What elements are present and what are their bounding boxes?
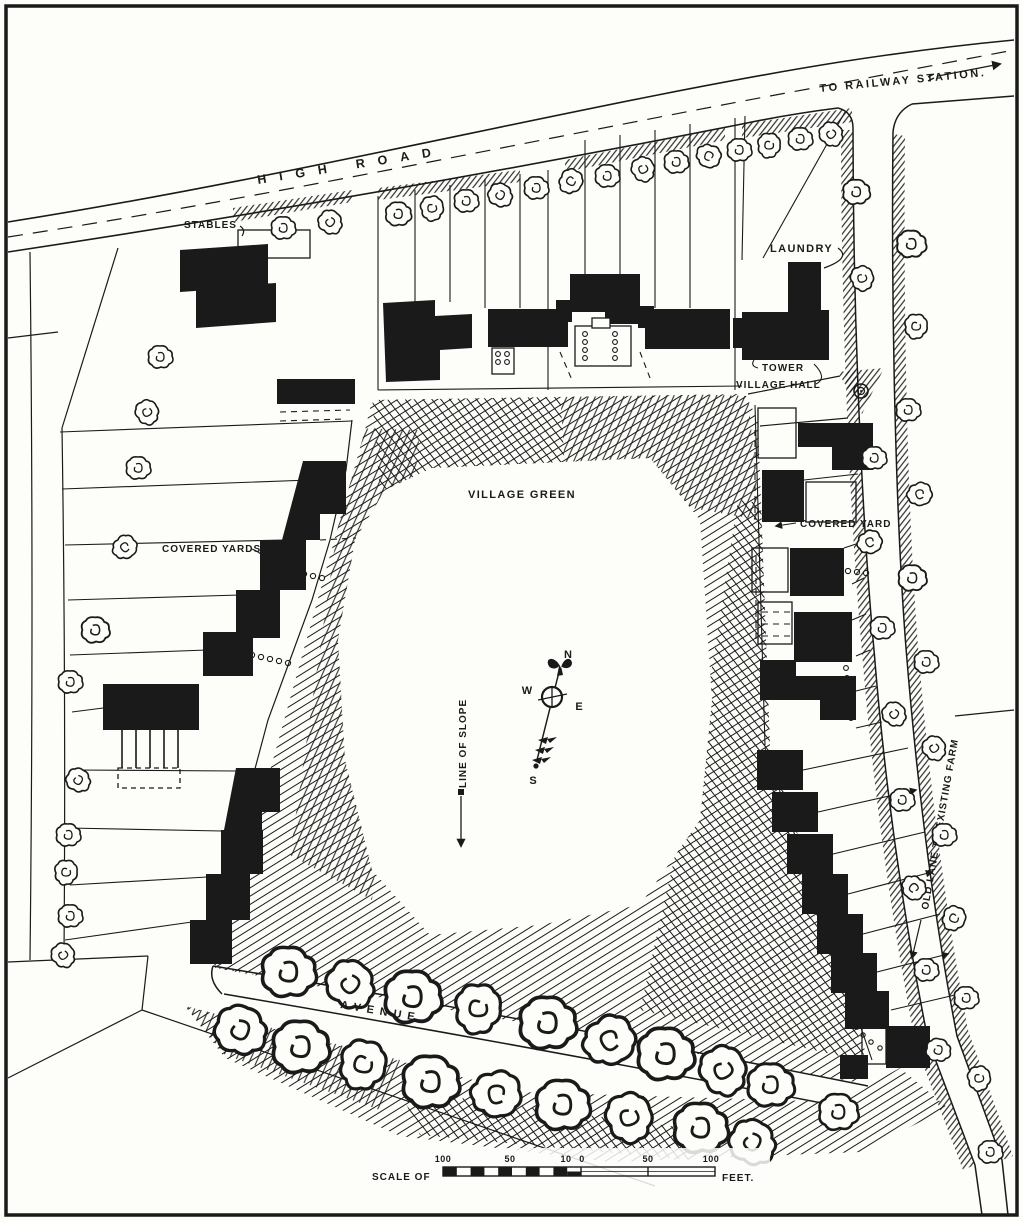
scale-bar: SCALE OF FEET. 100 50 10 0 50 100 [366,1148,770,1190]
scale-tick-100R: 100 [703,1154,720,1164]
right-row-4 [802,874,848,914]
scale-tick-50R: 50 [642,1154,653,1164]
tower-label: TOWER [762,363,804,374]
right-terrace-3 [790,548,844,596]
village-hall-label: VILLAGE HALL [736,380,821,391]
covered-yard-label: COVERED YARD [800,519,891,530]
right-terrace-2 [762,470,804,522]
terrace-north-4 [645,309,730,349]
left-terrace-2 [260,540,306,590]
left-terrace-3 [236,590,280,638]
right-row-1 [757,750,803,790]
compass-n: N [564,649,572,661]
scale-tick-50L: 50 [504,1154,515,1164]
laundry-annex [733,318,742,348]
right-row-9 [886,1026,930,1068]
right-row-3 [787,834,833,874]
compass-w: W [522,685,533,697]
right-terrace-5 [760,660,796,700]
right-row-2 [772,792,818,832]
line-of-slope-label: LINE OF SLOPE [458,699,469,788]
site-plan-page: HIGH ROAD TO RAILWAY STATION. OLD LANE T… [0,0,1023,1221]
village-green-label: VILLAGE GREEN [468,489,576,501]
scale-prefix-label: SCALE OF [372,1172,431,1183]
garden-building [277,379,355,404]
scale-tick-10: 10 [560,1154,571,1164]
right-row-8 [840,1055,868,1079]
right-row-7 [845,991,889,1029]
right-row-5 [817,914,863,954]
village-plan-map: HIGH ROAD TO RAILWAY STATION. OLD LANE T… [0,0,1023,1221]
stables-label: STABLES [184,220,237,231]
compass-s: S [529,775,536,787]
left-row-3 [206,874,250,920]
terrace-north-3w [556,300,572,322]
scale-tick-0: 0 [579,1154,585,1164]
right-terrace-4 [794,612,852,662]
left-mid-building [103,684,199,730]
stables-building-2 [196,283,276,328]
compass-e: E [575,701,582,713]
scale-tick-100L: 100 [435,1154,452,1164]
left-row-4 [190,920,232,964]
covered-yards-label: COVERED YARDS [162,544,261,555]
scale-suffix-label: FEET. [722,1173,754,1184]
laundry-label: LAUNDRY [770,243,833,255]
right-row-6 [831,953,877,993]
left-terrace-4 [203,632,253,676]
left-row-2 [221,830,263,874]
